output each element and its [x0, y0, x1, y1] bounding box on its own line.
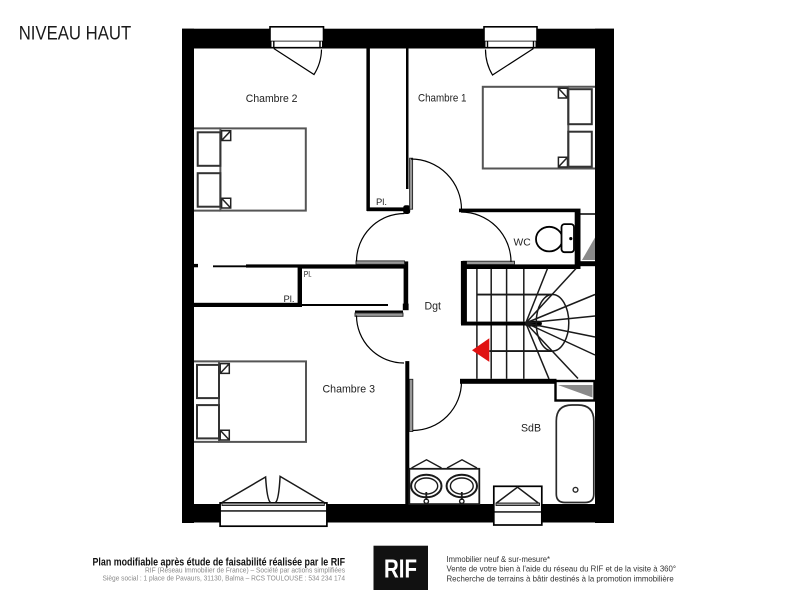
svg-text:Siège social : 1 place de Pava: Siège social : 1 place de Pavaurs, 31130…: [103, 573, 346, 582]
svg-text:NIVEAU HAUT: NIVEAU HAUT: [19, 23, 132, 45]
svg-text:RIF: RIF: [384, 554, 417, 584]
svg-text:Vente de votre bien à l'aide d: Vente de votre bien à l'aide du réseau d…: [447, 565, 677, 574]
svg-text:Chambre 2: Chambre 2: [246, 93, 298, 105]
svg-text:Pl.: Pl.: [376, 197, 387, 207]
svg-text:Immobilier neuf & sur-mesure*: Immobilier neuf & sur-mesure*: [447, 555, 551, 564]
svg-text:Pl.: Pl.: [284, 294, 295, 304]
svg-text:Pl.: Pl.: [304, 269, 312, 279]
svg-text:Dgt: Dgt: [425, 301, 442, 313]
svg-text:Chambre 3: Chambre 3: [323, 383, 376, 395]
svg-text:Chambre 1: Chambre 1: [418, 92, 467, 104]
svg-text:SdB: SdB: [521, 422, 541, 434]
svg-text:Recherche de terrains à bâtir: Recherche de terrains à bâtir destinés à…: [447, 574, 675, 583]
svg-text:WC: WC: [514, 237, 532, 249]
